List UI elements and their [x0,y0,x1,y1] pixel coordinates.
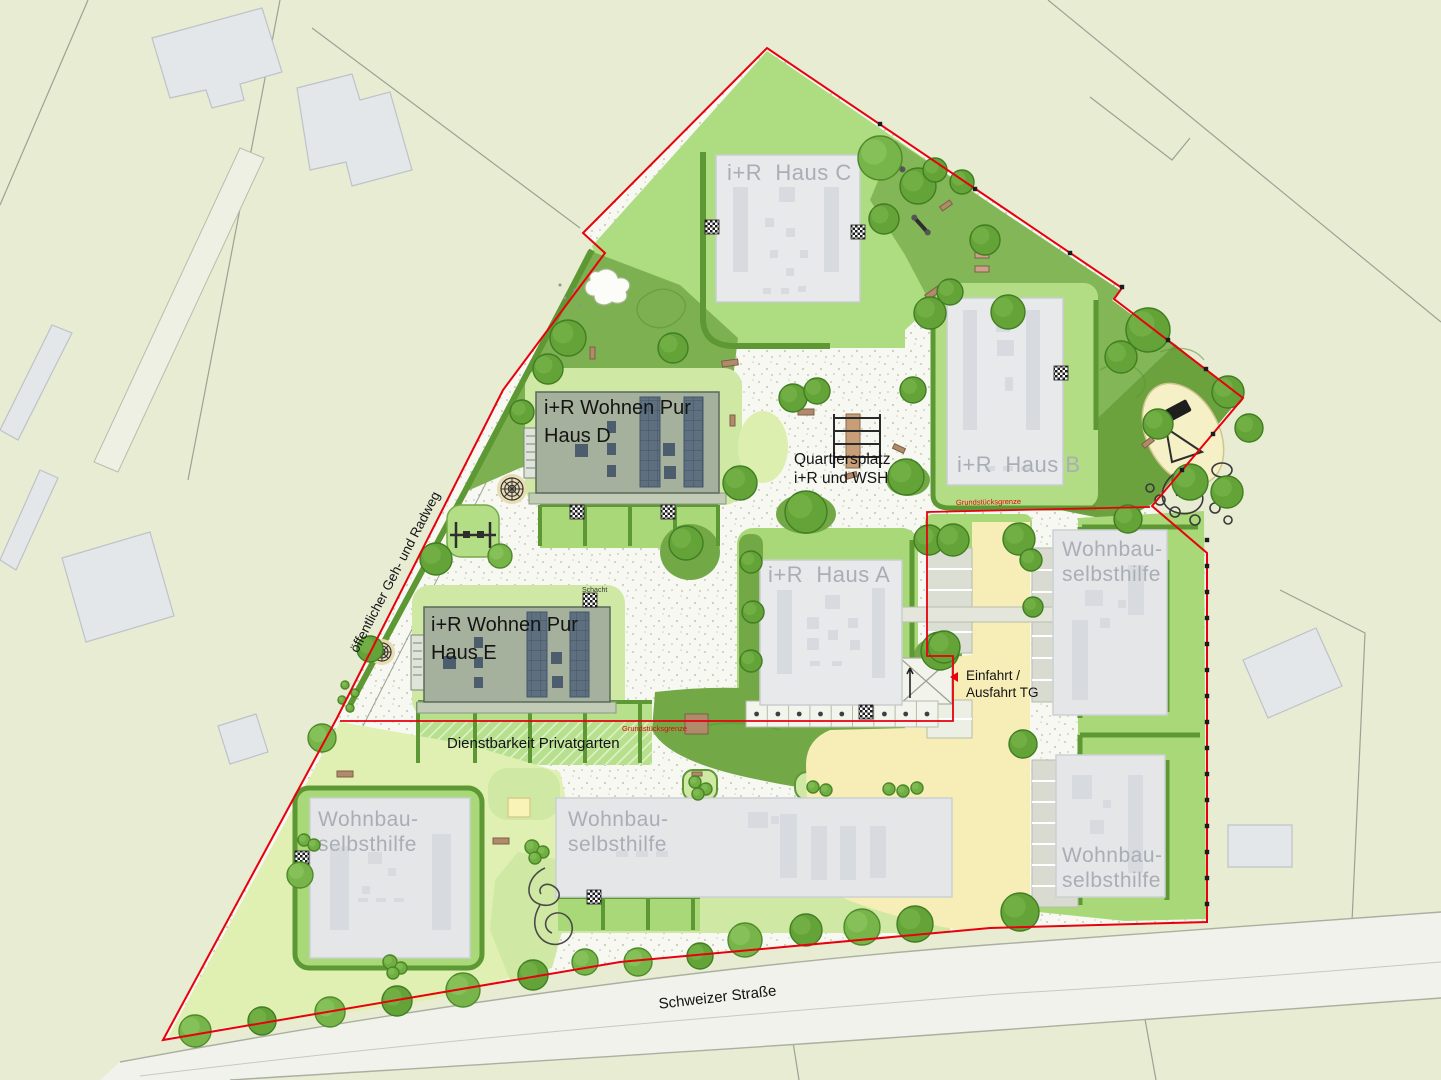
tree-icon [1009,730,1037,758]
entrance-grid-icon [583,593,597,607]
tree-icon [572,949,598,975]
boundary-tick [1166,338,1170,342]
label-wohnbau: selbsthilfe [318,833,417,856]
tree-icon [341,681,349,689]
bench-icon [493,838,509,844]
parking-dot [903,712,908,717]
label-haus-e-line1: i+R Wohnen Pur [431,614,578,636]
bench-icon [590,347,595,359]
tree-icon [669,526,703,560]
garden-cells-middle [558,895,700,931]
tree-icon [529,852,541,864]
tree-icon [888,459,924,495]
entrance-grid-icon [570,505,584,519]
label-einfahrt-line1: Einfahrt / [966,668,1020,683]
tree-icon [1023,597,1043,617]
tree-icon [869,204,899,234]
tree-icon [883,783,895,795]
boundary-tick [878,122,882,126]
tree-icon [1211,476,1243,508]
entrance-grid-icon [1054,366,1068,380]
tree-icon [1105,341,1137,373]
label-haus-a: i+R Haus A [768,562,890,587]
boundary-tick [1205,850,1209,854]
parking-dot [797,712,802,717]
bench-icon [692,772,702,776]
tree-icon [510,400,534,424]
entrance-grid-icon [661,505,675,519]
building-haus-d: i+R Wohnen Pur Haus D [524,392,726,504]
tree-icon [790,914,822,946]
boundary-tick [1211,432,1215,436]
boundary-tick [973,187,977,191]
bench-icon [337,771,353,777]
parking-dot [839,712,844,717]
tree-icon [937,524,969,556]
tree-icon [723,466,757,500]
neighbor-building [1228,825,1292,867]
building-haus-a: i+R Haus A [760,560,902,705]
tree-icon [914,297,946,329]
label-haus-c: i+R Haus C [727,160,852,185]
label-dienstbarkeit: Dienstbarkeit Privatgarten [447,735,620,752]
label-wohnbau: selbsthilfe [568,833,667,856]
tree-icon [387,967,399,979]
sandbox-icon [508,798,530,817]
tree-icon [689,776,701,788]
entrance-grid-icon [705,220,719,234]
label-schacht: Schacht [582,587,607,594]
parking-dot [754,712,759,717]
tree-icon [928,631,960,663]
label-grundstuecksgrenze: Grundstücksgrenze [956,497,1021,507]
boundary-tick [1204,367,1208,371]
building-haus-c: i+R Haus C [716,155,860,302]
building-wohnbau-southwest: Wohnbau- selbsthilfe [310,798,470,958]
boundary-tick [1205,824,1209,828]
label-wohnbau: Wohnbau- [568,808,669,831]
tree-icon [658,333,688,363]
boundary-tick [1205,642,1209,646]
tree-icon [740,650,762,672]
label-wohnbau: Wohnbau- [1062,538,1163,561]
tree-icon [779,384,807,412]
label-wohnbau: selbsthilfe [1062,869,1161,892]
parking-dot [925,712,930,717]
parking-dot [776,712,781,717]
tree-icon [897,785,909,797]
label-wohnbau: Wohnbau- [1062,844,1163,867]
label-haus-e-line2: Haus E [431,642,497,664]
entrance-grid-icon [851,225,865,239]
tree-icon [1172,464,1208,500]
site-plan: i+R Haus C i+R Haus B i+R Haus A [0,0,1441,1080]
boundary-tick [1205,798,1209,802]
tree-icon [911,782,923,794]
tree-icon [1143,409,1173,439]
building-wohnbau-south-middle: Wohnbau- selbsthilfe [556,798,952,897]
tree-icon [804,378,830,404]
tree-icon [1020,549,1042,571]
tree-icon [488,544,512,568]
site-plan-svg: i+R Haus C i+R Haus B i+R Haus A [0,0,1441,1080]
picnic-table-icon [685,714,708,734]
boundary-tick [1205,564,1209,568]
boundary-tick [1205,668,1209,672]
tree-icon [550,320,586,356]
building-wohnbau-east-bottom: Wohnbau- selbsthilfe [1056,755,1165,897]
tree-icon [807,781,819,793]
boundary-tick [1205,720,1209,724]
boundary-tick [1068,251,1072,255]
entrance-grid-icon [587,890,601,904]
tree-icon [351,689,359,697]
building-wohnbau-east-top: Wohnbau- selbsthilfe [1053,530,1167,715]
boundary-tick [1120,285,1124,289]
tree-icon [346,704,354,712]
tree-icon [533,354,563,384]
tree-icon [742,601,764,623]
tree-icon [785,491,827,533]
entrance-grid-icon [859,705,873,719]
boundary-tick [1205,694,1209,698]
boundary-tick [1205,538,1209,542]
tree-icon [1114,505,1142,533]
boundary-tick [1205,590,1209,594]
label-quartiersplatz-line2: i+R und WSH [794,470,888,487]
tree-icon [420,543,452,575]
label-wohnbau: selbsthilfe [1062,563,1161,586]
spiral-climber-icon [497,474,527,504]
tree-icon [991,295,1025,329]
boundary-tick [1180,468,1184,472]
label-haus-d-line2: Haus D [544,425,611,447]
tree-icon [858,136,902,180]
tree-icon [970,225,1000,255]
tree-icon [308,839,320,851]
boundary-tick [1205,616,1209,620]
boundary-tick [1205,746,1209,750]
tree-icon [287,862,313,888]
tree-icon [692,788,704,800]
tree-icon [1001,893,1039,931]
tree-icon [179,1015,211,1047]
tree-icon [1235,414,1263,442]
tree-icon [820,784,832,796]
tree-icon [740,551,762,573]
tree-icon [900,377,926,403]
parking-dot [882,712,887,717]
label-einfahrt-line2: Ausfahrt TG [966,685,1039,700]
label-haus-b: i+R Haus B [957,452,1081,477]
label-quartiersplatz-line1: Quartiersplatz [794,451,890,468]
label-grundstuecksgrenze: Grundstücksgrenze [622,724,687,733]
parking-dot [818,712,823,717]
bench-icon [975,266,989,272]
label-haus-d-line1: i+R Wohnen Pur [544,397,691,419]
building-haus-e: i+R Wohnen Pur Haus E [411,607,616,713]
boundary-tick [1205,772,1209,776]
bench-icon [730,415,735,426]
label-wohnbau: Wohnbau- [318,808,419,831]
boundary-tick [1205,876,1209,880]
boundary-tick [1205,902,1209,906]
